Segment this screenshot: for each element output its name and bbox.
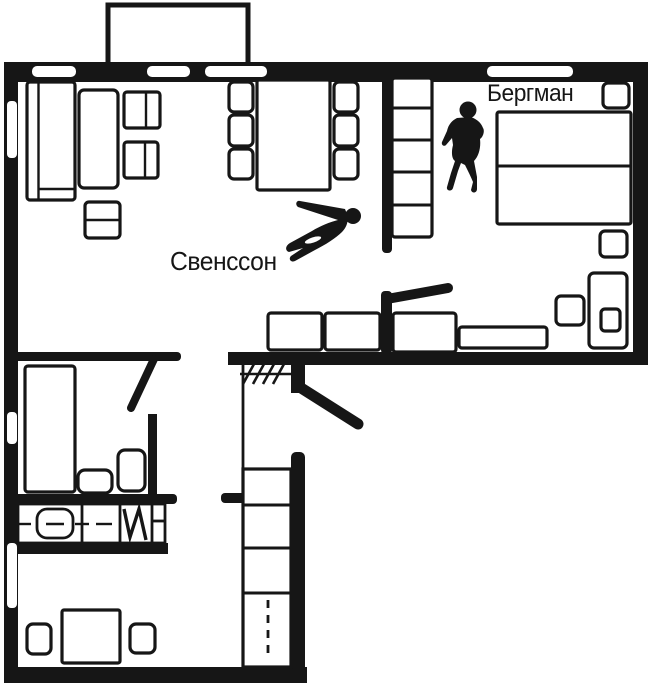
sofa xyxy=(27,82,75,200)
desk-chair-inner xyxy=(601,309,620,331)
dining-chair xyxy=(229,149,253,179)
balcony-outline xyxy=(108,5,248,67)
dining-chair xyxy=(229,82,253,112)
dining-chair xyxy=(229,115,253,146)
lying-person-body xyxy=(286,201,348,262)
hall-cabinet xyxy=(393,313,456,352)
entrance-door-leaf xyxy=(298,386,358,424)
standing-person-icon xyxy=(442,102,484,193)
window-left-3 xyxy=(7,543,17,608)
twin-beds xyxy=(497,112,631,224)
label-bergman: Бергман xyxy=(487,80,573,108)
nightstand xyxy=(600,231,627,257)
bookshelf xyxy=(392,78,432,237)
single-bed xyxy=(25,366,75,492)
outer-wall-lower-right xyxy=(291,452,305,680)
kitchen-counter xyxy=(243,364,291,667)
bedroom-door-leaf xyxy=(131,359,154,408)
side-table-lower xyxy=(124,142,158,178)
window-left-1 xyxy=(7,101,17,158)
dining-chair xyxy=(334,115,358,146)
hall-cabinet xyxy=(268,313,322,350)
standing-person-body xyxy=(442,117,484,193)
window-top-3 xyxy=(205,66,267,77)
outer-wall-bottom xyxy=(4,667,307,683)
kitchen-chair xyxy=(130,624,155,653)
dining-table xyxy=(257,80,330,190)
bedside-cabinet xyxy=(118,450,145,491)
window-left-2 xyxy=(7,412,17,444)
bedside-stool xyxy=(78,470,112,493)
kitchen-chair xyxy=(27,624,51,654)
hall-cabinet xyxy=(325,313,380,350)
standing-person-head xyxy=(460,102,477,119)
lying-person-icon xyxy=(286,201,361,262)
bench xyxy=(459,327,547,348)
window-top-2 xyxy=(147,66,190,77)
bergman-door-leaf xyxy=(387,288,448,299)
balcony xyxy=(108,5,248,67)
chair xyxy=(556,296,584,325)
kitchen-table xyxy=(62,610,120,663)
bathroom xyxy=(18,504,165,543)
outer-wall-right xyxy=(633,62,648,365)
bathroom-south-wall xyxy=(4,543,168,554)
entrance-hatch xyxy=(240,364,294,384)
bedroom-side-wall xyxy=(148,414,157,498)
daybed xyxy=(79,90,118,188)
corner-table xyxy=(603,83,629,108)
dining-chair xyxy=(334,82,358,112)
window-top-4 xyxy=(487,66,573,77)
dining-chair xyxy=(334,149,358,179)
side-table-upper xyxy=(124,92,160,128)
label-svensson: Свенссон xyxy=(170,246,277,277)
furniture xyxy=(18,78,631,667)
floorplan: Бергман Свенссон xyxy=(0,0,650,686)
window-top-1 xyxy=(32,66,76,77)
